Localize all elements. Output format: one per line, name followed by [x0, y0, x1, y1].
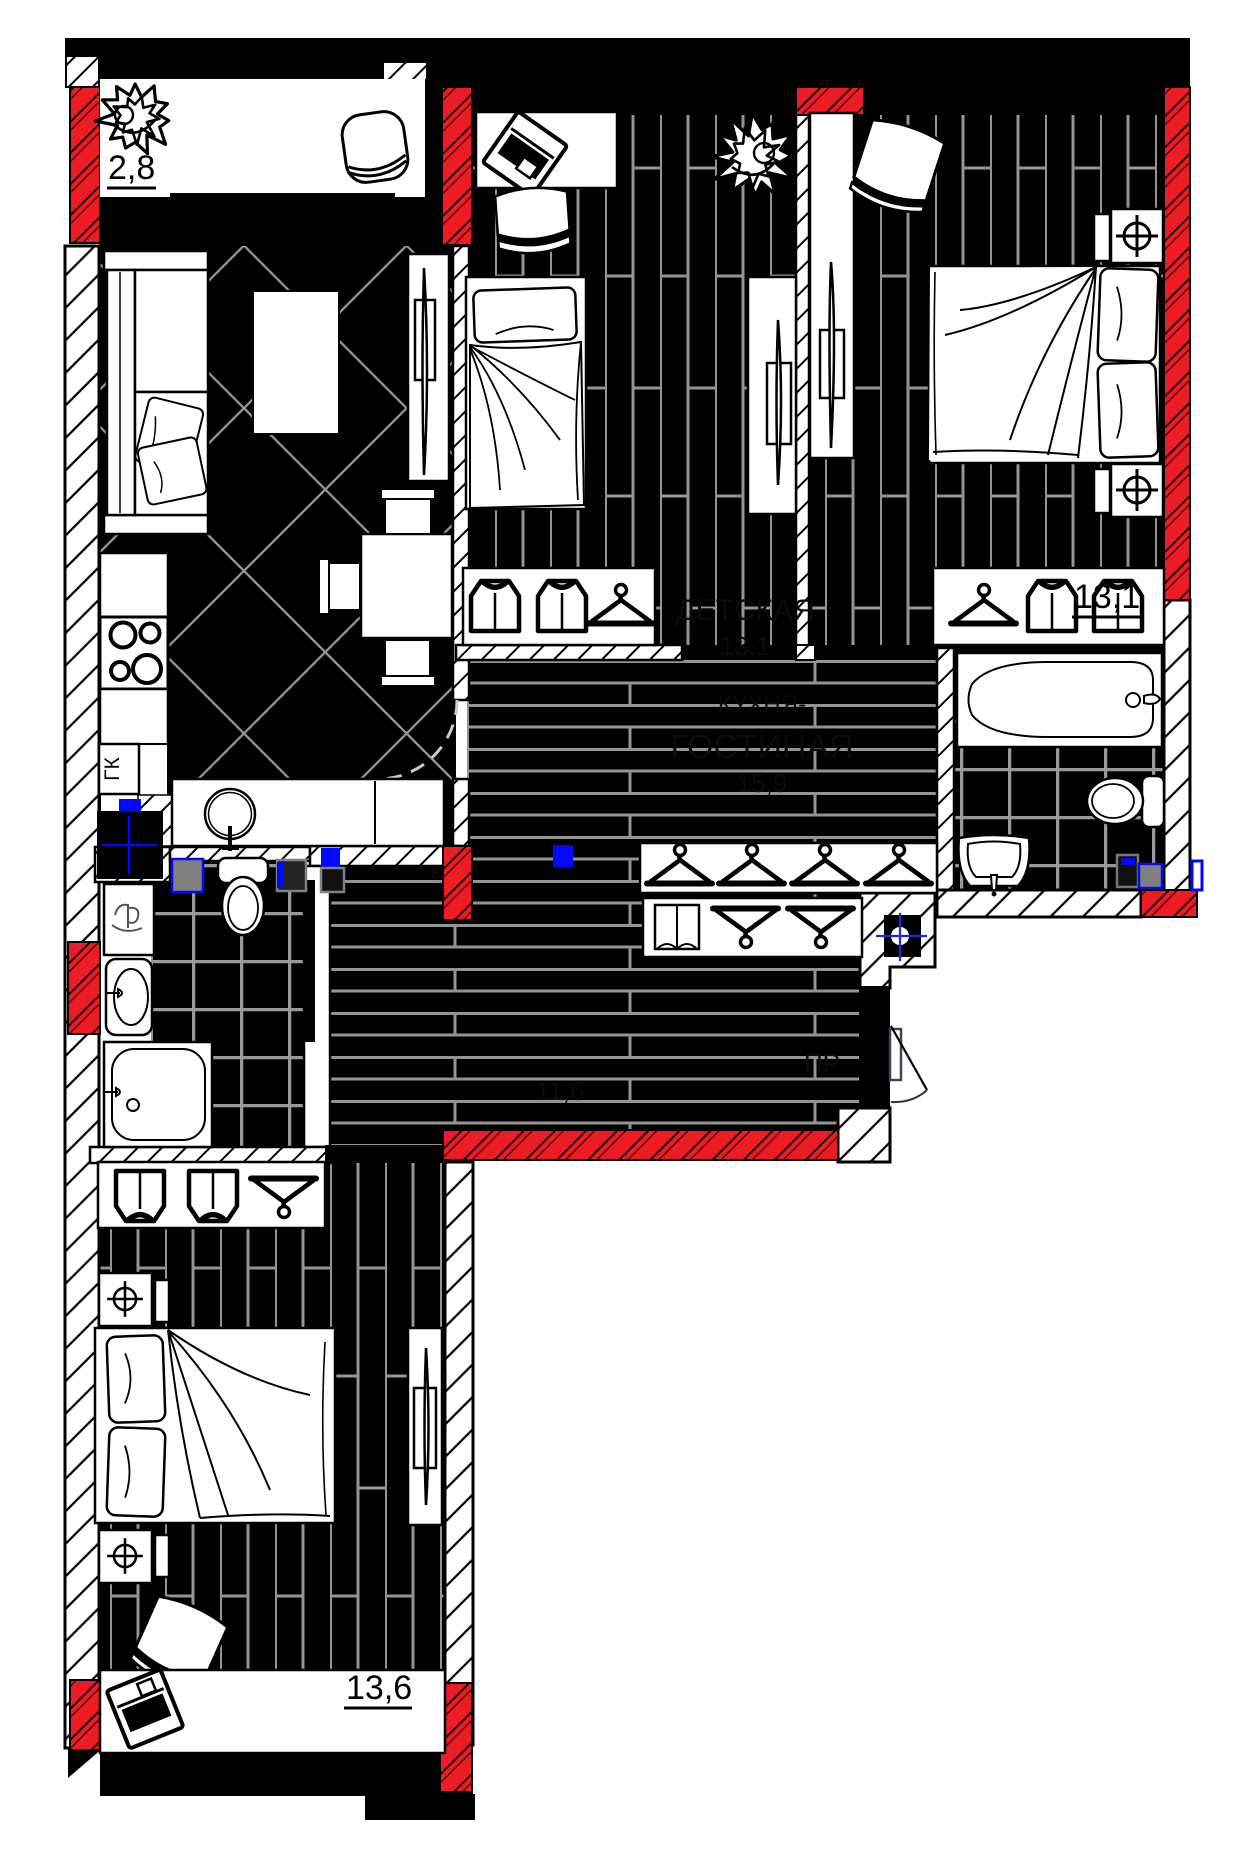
- svg-text:ГК: ГК: [101, 756, 124, 780]
- svg-text:ПР: ПР: [804, 1048, 840, 1078]
- svg-text:11,6: 11,6: [536, 1076, 585, 1106]
- svg-text:13,1: 13,1: [1074, 578, 1140, 616]
- svg-text:КУХНЯ-: КУХНЯ-: [718, 691, 806, 718]
- svg-text:2,8: 2,8: [108, 149, 155, 187]
- svg-text:ДЕТСКАЯ: ДЕТСКАЯ: [675, 594, 814, 627]
- svg-text:13,6: 13,6: [346, 1669, 412, 1707]
- svg-text:15,9: 15,9: [737, 768, 788, 798]
- svg-text:ГОСТИНАЯ: ГОСТИНАЯ: [670, 728, 853, 766]
- svg-text:13,1: 13,1: [720, 631, 771, 661]
